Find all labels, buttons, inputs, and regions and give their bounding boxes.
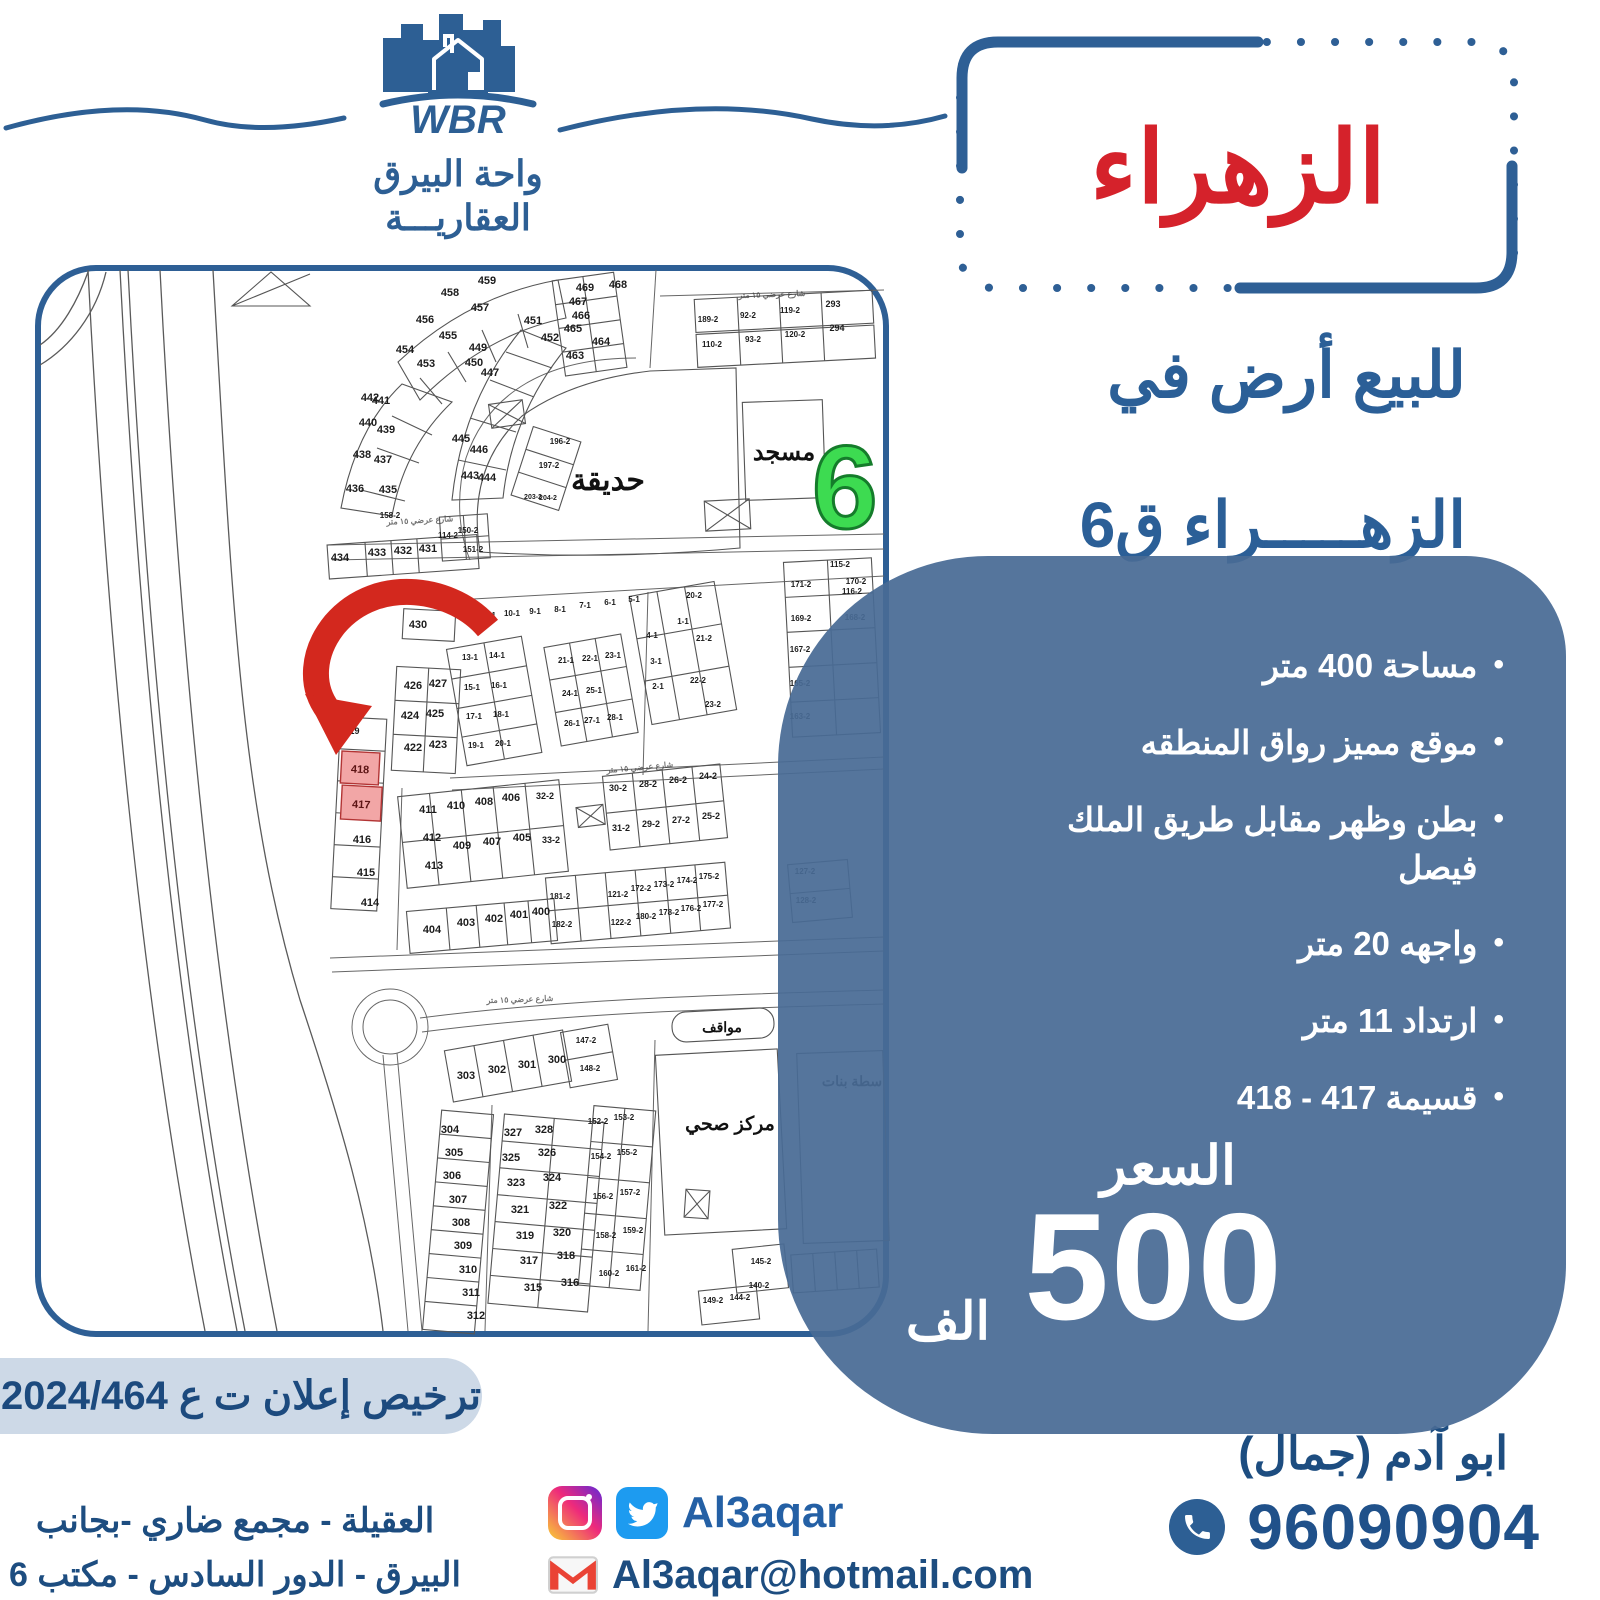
svg-text:306: 306	[443, 1170, 461, 1182]
svg-text:446: 446	[470, 444, 488, 456]
svg-text:317: 317	[520, 1255, 538, 1267]
social-links: Al3aqar Al3aqar@hotmail.com	[548, 1482, 1033, 1600]
license-badge: ترخيص إعلان ت ع 2024/464	[0, 1358, 482, 1434]
svg-text:405: 405	[513, 832, 531, 844]
svg-text:24-1: 24-1	[562, 689, 579, 698]
svg-text:114-2: 114-2	[438, 531, 459, 540]
feature-item: •موقع مميز رواق المنطقه	[1012, 719, 1504, 767]
feature-item: •قسيمة 417 - 418	[1012, 1074, 1504, 1122]
svg-text:463: 463	[566, 350, 584, 362]
svg-text:305: 305	[445, 1147, 463, 1159]
svg-text:323: 323	[507, 1177, 525, 1189]
svg-text:404: 404	[423, 924, 442, 936]
highlighted-plot-417: 417	[352, 799, 371, 812]
svg-text:403: 403	[457, 917, 475, 929]
svg-text:170-2: 170-2	[846, 577, 867, 586]
svg-text:25-1: 25-1	[586, 686, 603, 695]
svg-text:400: 400	[532, 906, 550, 918]
logo-name-line1: واحة البيرق	[373, 153, 542, 196]
svg-text:20-1: 20-1	[495, 739, 512, 748]
office-address-line1: العقيلة - مجمع ضاري -بجانب	[0, 1494, 470, 1548]
svg-text:324: 324	[543, 1172, 562, 1184]
feature-item: •واجهه 20 متر	[1012, 920, 1504, 968]
svg-text:326: 326	[538, 1147, 556, 1159]
logo-acronym: WBR	[410, 98, 506, 142]
svg-text:325: 325	[502, 1152, 520, 1164]
svg-text:115-2: 115-2	[830, 560, 851, 569]
logo-skyline-icon	[383, 14, 533, 104]
svg-text:308: 308	[452, 1217, 470, 1229]
svg-text:23-1: 23-1	[605, 651, 622, 660]
svg-text:455: 455	[439, 330, 457, 342]
svg-text:465: 465	[564, 323, 582, 335]
svg-text:431: 431	[419, 543, 437, 555]
svg-text:310: 310	[459, 1264, 477, 1276]
svg-text:189-2: 189-2	[698, 315, 719, 324]
svg-text:24-2: 24-2	[699, 771, 717, 781]
svg-text:157-2: 157-2	[620, 1188, 641, 1197]
svg-text:447: 447	[481, 367, 499, 379]
phone-icon	[1169, 1499, 1225, 1555]
svg-text:147-2: 147-2	[576, 1036, 597, 1045]
svg-text:33-2: 33-2	[542, 835, 560, 845]
svg-text:307: 307	[449, 1194, 467, 1206]
twitter-icon[interactable]	[616, 1487, 668, 1539]
svg-text:154-2: 154-2	[591, 1152, 612, 1161]
svg-text:26-2: 26-2	[669, 775, 687, 785]
svg-text:15-1: 15-1	[464, 683, 481, 692]
phone-number[interactable]: 96090904	[1247, 1490, 1540, 1564]
svg-text:171-2: 171-2	[791, 580, 812, 589]
svg-text:304: 304	[441, 1124, 460, 1136]
svg-text:32-2: 32-2	[536, 791, 554, 801]
svg-text:21-1: 21-1	[558, 656, 575, 665]
feature-item: •مساحة 400 متر	[1012, 642, 1504, 690]
svg-text:8-1: 8-1	[554, 605, 566, 614]
svg-text:3-1: 3-1	[650, 657, 662, 666]
svg-text:435: 435	[379, 484, 397, 496]
svg-text:148-2: 148-2	[580, 1064, 601, 1073]
svg-text:174-2: 174-2	[677, 876, 698, 885]
garden-label: حديقة	[571, 464, 645, 497]
price-unit: الف	[906, 1292, 990, 1352]
svg-text:7-1: 7-1	[579, 601, 591, 610]
svg-text:437: 437	[374, 454, 392, 466]
svg-text:4-1: 4-1	[646, 631, 658, 640]
svg-text:459: 459	[478, 275, 496, 287]
email-address[interactable]: Al3aqar@hotmail.com	[612, 1553, 1033, 1598]
svg-text:119-2: 119-2	[780, 306, 801, 315]
svg-text:441: 441	[372, 395, 390, 407]
svg-text:2-1: 2-1	[652, 682, 664, 691]
svg-text:5-1: 5-1	[628, 595, 640, 604]
gmail-icon[interactable]	[548, 1556, 598, 1594]
svg-text:22-1: 22-1	[582, 654, 599, 663]
svg-text:16-1: 16-1	[491, 681, 508, 690]
svg-text:22-2: 22-2	[690, 676, 707, 685]
svg-text:110-2: 110-2	[702, 340, 723, 349]
office-address-line2: البيرق - الدور السادس - مكتب 6	[0, 1548, 470, 1600]
svg-text:92-2: 92-2	[740, 311, 757, 320]
svg-text:423: 423	[429, 739, 447, 751]
svg-text:321: 321	[511, 1204, 529, 1216]
svg-text:144-2: 144-2	[730, 1293, 751, 1302]
svg-text:10-1: 10-1	[504, 609, 521, 618]
svg-text:197-2: 197-2	[539, 461, 560, 470]
svg-text:6-1: 6-1	[604, 598, 616, 607]
svg-text:402: 402	[485, 913, 503, 925]
svg-text:158-2: 158-2	[596, 1231, 617, 1240]
svg-text:302: 302	[488, 1064, 506, 1076]
svg-text:14-1: 14-1	[489, 651, 506, 660]
svg-text:172-2: 172-2	[631, 884, 652, 893]
svg-text:468: 468	[609, 279, 627, 291]
svg-text:1-1: 1-1	[677, 617, 689, 626]
svg-text:456: 456	[416, 314, 434, 326]
svg-text:328: 328	[535, 1124, 553, 1136]
svg-text:407: 407	[483, 836, 501, 848]
svg-text:410: 410	[447, 800, 465, 812]
features-list: •مساحة 400 متر•موقع مميز رواق المنطقه•بط…	[1012, 642, 1504, 1151]
svg-text:467: 467	[569, 296, 587, 308]
svg-text:204-2: 204-2	[539, 495, 557, 502]
svg-text:26-1: 26-1	[564, 719, 581, 728]
svg-text:322: 322	[549, 1200, 567, 1212]
svg-text:414: 414	[361, 897, 380, 909]
svg-text:432: 432	[394, 545, 412, 557]
svg-text:401: 401	[510, 909, 528, 921]
header-wave-left	[6, 110, 344, 128]
svg-text:457: 457	[471, 302, 489, 314]
svg-text:409: 409	[453, 840, 471, 852]
svg-text:454: 454	[396, 344, 415, 356]
svg-text:293: 293	[825, 299, 840, 309]
parking-label: مواقف	[702, 1019, 742, 1036]
svg-text:160-2: 160-2	[599, 1269, 620, 1278]
price-amount: 500	[1024, 1180, 1284, 1355]
svg-text:318: 318	[557, 1250, 575, 1262]
mosque-label: مسجد	[753, 439, 815, 466]
svg-text:453: 453	[417, 358, 435, 370]
svg-text:294: 294	[829, 323, 844, 333]
svg-text:466: 466	[572, 310, 590, 322]
contact-name: ابو آدم (جمال)	[1238, 1426, 1508, 1480]
svg-text:31-2: 31-2	[612, 823, 630, 833]
svg-text:300: 300	[548, 1054, 566, 1066]
svg-text:9-1: 9-1	[529, 607, 541, 616]
svg-text:406: 406	[502, 792, 520, 804]
svg-text:20-2: 20-2	[686, 591, 703, 600]
svg-text:464: 464	[592, 336, 611, 348]
svg-text:320: 320	[553, 1227, 571, 1239]
svg-text:27-2: 27-2	[672, 815, 690, 825]
company-logo: WBR واحة البيرق العقاريـــة	[0, 0, 960, 250]
cadastral-map: 418 417 حديقة مسجد مواقف مركز صحي سطة بن…	[35, 265, 890, 1340]
svg-text:451: 451	[524, 315, 542, 327]
svg-text:19-1: 19-1	[468, 741, 485, 750]
district-title: الزهراء	[1090, 112, 1386, 228]
svg-text:177-2: 177-2	[703, 900, 724, 909]
svg-text:309: 309	[454, 1240, 472, 1252]
svg-text:411: 411	[419, 804, 437, 816]
svg-text:443: 443	[461, 470, 479, 482]
svg-text:422: 422	[404, 742, 422, 754]
svg-text:434: 434	[331, 552, 350, 564]
svg-text:18-1: 18-1	[493, 710, 510, 719]
svg-text:28-2: 28-2	[639, 779, 657, 789]
svg-text:155-2: 155-2	[617, 1148, 638, 1157]
svg-text:425: 425	[426, 708, 444, 720]
svg-text:469: 469	[576, 282, 594, 294]
svg-text:315: 315	[524, 1282, 542, 1294]
svg-text:196-2: 196-2	[550, 437, 571, 446]
svg-text:149-2: 149-2	[703, 1296, 724, 1305]
svg-text:408: 408	[475, 796, 493, 808]
office-address: العقيلة - مجمع ضاري -بجانب البيرق - الدو…	[0, 1494, 470, 1600]
svg-text:153-2: 153-2	[614, 1113, 635, 1122]
phone-row: 96090904	[1169, 1490, 1540, 1564]
svg-text:316: 316	[561, 1277, 579, 1289]
svg-text:173-2: 173-2	[654, 880, 675, 889]
svg-text:176-2: 176-2	[681, 904, 702, 913]
svg-text:433: 433	[368, 547, 386, 559]
svg-text:412: 412	[423, 832, 441, 844]
svg-text:17-1: 17-1	[466, 712, 483, 721]
svg-text:312: 312	[467, 1310, 485, 1322]
svg-text:311: 311	[462, 1287, 480, 1299]
svg-text:121-2: 121-2	[608, 890, 629, 899]
svg-text:301: 301	[518, 1059, 536, 1071]
svg-text:156-2: 156-2	[593, 1192, 614, 1201]
svg-text:116-2: 116-2	[842, 587, 863, 596]
health-center-label: مركز صحي	[685, 1114, 775, 1136]
svg-text:426: 426	[404, 680, 422, 692]
svg-text:452: 452	[541, 332, 559, 344]
svg-text:181-2: 181-2	[550, 892, 571, 901]
svg-text:161-2: 161-2	[626, 1264, 647, 1273]
svg-text:440: 440	[359, 417, 377, 429]
svg-text:159-2: 159-2	[623, 1226, 644, 1235]
svg-text:449: 449	[469, 342, 487, 354]
svg-text:150-2: 150-2	[458, 526, 479, 535]
feature-item: •بطن وظهر مقابل طريق الملك فيصل	[1012, 796, 1504, 892]
instagram-icon[interactable]	[548, 1486, 602, 1540]
svg-text:180-2: 180-2	[636, 912, 657, 921]
svg-text:424: 424	[401, 710, 420, 722]
feature-item: •ارتداد 11 متر	[1012, 997, 1504, 1045]
svg-text:436: 436	[346, 483, 364, 495]
title-box: الزهراء	[940, 20, 1560, 320]
district-number-badge: 6	[812, 420, 878, 556]
svg-text:151-2: 151-2	[463, 545, 484, 554]
svg-text:427: 427	[429, 678, 447, 690]
svg-text:430: 430	[409, 619, 427, 631]
svg-text:120-2: 120-2	[785, 330, 806, 339]
sale-subtitle-line1: للبيع أرض في	[906, 300, 1466, 450]
svg-text:21-2: 21-2	[696, 634, 713, 643]
svg-text:13-1: 13-1	[462, 653, 479, 662]
svg-text:444: 444	[478, 472, 497, 484]
logo-name-line2: العقاريـــة	[385, 197, 531, 240]
svg-text:413: 413	[425, 860, 443, 872]
advert-poster: WBR واحة البيرق العقاريـــة الزهراء للبي…	[0, 0, 1600, 1600]
svg-text:145-2: 145-2	[751, 1257, 772, 1266]
sale-subtitle: للبيع أرض في الزهـــــراء ق6	[906, 300, 1466, 600]
svg-text:178-2: 178-2	[659, 908, 680, 917]
svg-text:319: 319	[516, 1230, 534, 1242]
svg-text:327: 327	[504, 1127, 522, 1139]
svg-text:140-2: 140-2	[749, 1281, 770, 1290]
social-handle[interactable]: Al3aqar	[682, 1488, 843, 1538]
svg-text:438: 438	[353, 449, 371, 461]
svg-text:303: 303	[457, 1070, 475, 1082]
svg-text:122-2: 122-2	[611, 918, 632, 927]
svg-text:27-1: 27-1	[584, 716, 601, 725]
svg-text:416: 416	[353, 834, 371, 846]
svg-text:458: 458	[441, 287, 459, 299]
svg-text:23-2: 23-2	[705, 700, 722, 709]
svg-text:29-2: 29-2	[642, 819, 660, 829]
header-wave-right	[560, 109, 945, 130]
svg-text:169-2: 169-2	[791, 614, 812, 623]
svg-text:445: 445	[452, 433, 470, 445]
svg-text:28-1: 28-1	[607, 713, 624, 722]
svg-text:415: 415	[357, 867, 375, 879]
svg-text:93-2: 93-2	[745, 335, 762, 344]
svg-text:152-2: 152-2	[588, 1117, 609, 1126]
highlighted-plot-418: 418	[351, 764, 370, 777]
svg-text:439: 439	[377, 424, 395, 436]
svg-text:182-2: 182-2	[552, 920, 573, 929]
features-panel: •مساحة 400 متر•موقع مميز رواق المنطقه•بط…	[778, 556, 1566, 1434]
svg-text:25-2: 25-2	[702, 811, 720, 821]
svg-text:175-2: 175-2	[699, 872, 720, 881]
svg-text:30-2: 30-2	[609, 783, 627, 793]
svg-text:167-2: 167-2	[790, 645, 811, 654]
